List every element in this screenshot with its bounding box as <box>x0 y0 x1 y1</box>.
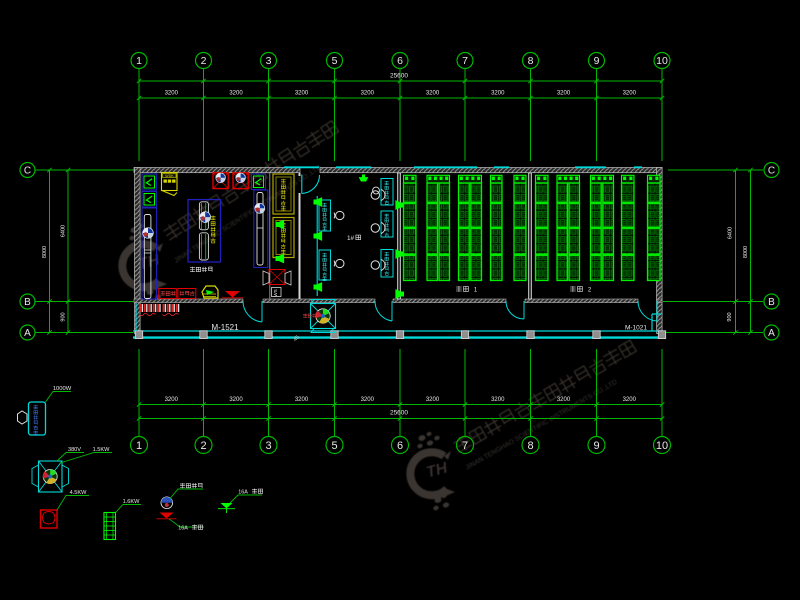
svg-text:3200: 3200 <box>295 397 309 403</box>
svg-text:B: B <box>768 297 775 308</box>
svg-text:900: 900 <box>727 312 733 321</box>
svg-text:900: 900 <box>61 312 67 321</box>
svg-text:1000W: 1000W <box>53 386 72 392</box>
svg-text:3200: 3200 <box>623 91 637 97</box>
svg-text:8000: 8000 <box>743 246 749 258</box>
svg-text:3200: 3200 <box>165 91 179 97</box>
svg-text:7: 7 <box>462 440 468 452</box>
svg-text:A: A <box>768 328 775 339</box>
svg-text:3: 3 <box>265 440 271 452</box>
svg-text:10: 10 <box>656 55 668 67</box>
svg-text:3200: 3200 <box>623 397 637 403</box>
svg-text:2: 2 <box>200 440 206 452</box>
svg-text:8: 8 <box>527 440 533 452</box>
svg-text:1: 1 <box>136 440 142 452</box>
svg-text:16A: 16A <box>178 526 188 532</box>
svg-text:4.5KW: 4.5KW <box>70 490 88 496</box>
svg-text:1.5KW: 1.5KW <box>93 447 111 453</box>
svg-text:25600: 25600 <box>390 73 408 80</box>
svg-text:M-1521: M-1521 <box>211 323 239 332</box>
svg-text:6400: 6400 <box>728 227 734 239</box>
svg-text:3200: 3200 <box>229 397 243 403</box>
svg-text:5: 5 <box>331 440 337 452</box>
svg-text:6: 6 <box>397 55 403 67</box>
svg-text:WDK: WDK <box>165 174 174 178</box>
svg-text:6: 6 <box>397 440 403 452</box>
svg-text:3200: 3200 <box>361 397 375 403</box>
svg-text:3200: 3200 <box>557 91 571 97</box>
svg-text:2: 2 <box>201 55 207 67</box>
svg-text:9: 9 <box>593 440 599 452</box>
svg-text:380V: 380V <box>68 447 81 453</box>
svg-text:6400: 6400 <box>61 225 67 237</box>
svg-text:M-1021: M-1021 <box>625 325 647 332</box>
svg-text:3200: 3200 <box>361 91 375 97</box>
svg-text:16A: 16A <box>238 490 248 496</box>
svg-text:WS: WS <box>273 289 278 296</box>
svg-text:25600: 25600 <box>390 410 408 417</box>
svg-text:A: A <box>24 328 31 339</box>
svg-text:1.6KW: 1.6KW <box>123 499 141 505</box>
svg-text:1#: 1# <box>347 235 355 242</box>
svg-text:C: C <box>768 166 775 177</box>
svg-text:3200: 3200 <box>426 91 440 97</box>
svg-text:3200: 3200 <box>491 397 505 403</box>
svg-text:3200: 3200 <box>165 397 179 403</box>
svg-text:9: 9 <box>594 55 600 67</box>
svg-text:7: 7 <box>462 55 468 67</box>
svg-text:3200: 3200 <box>491 91 505 97</box>
svg-text:8: 8 <box>528 55 534 67</box>
svg-text:8000: 8000 <box>42 246 48 258</box>
svg-text:3200: 3200 <box>229 91 243 97</box>
svg-text:3200: 3200 <box>295 91 309 97</box>
svg-text:3200: 3200 <box>426 397 440 403</box>
svg-text:1: 1 <box>136 55 142 67</box>
svg-text:B: B <box>24 297 31 308</box>
svg-text:10: 10 <box>656 440 668 452</box>
svg-text:3: 3 <box>266 55 272 67</box>
svg-text:C: C <box>24 166 31 177</box>
svg-text:5: 5 <box>332 55 338 67</box>
svg-text:3200: 3200 <box>557 397 571 403</box>
